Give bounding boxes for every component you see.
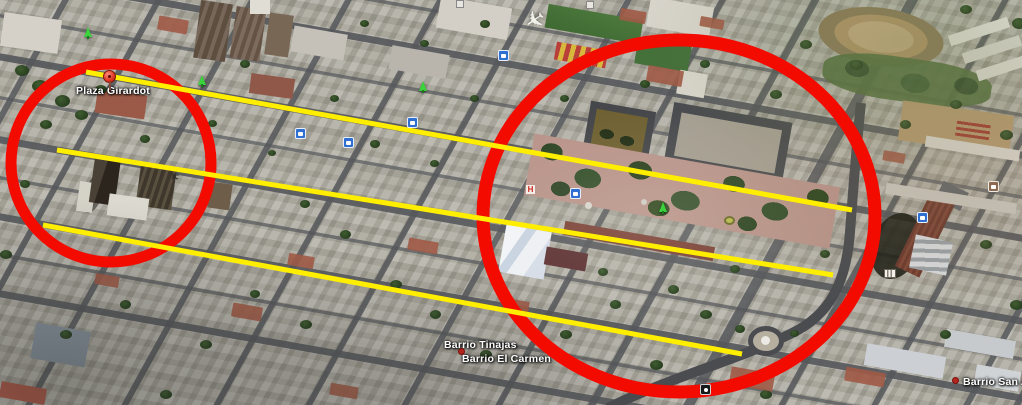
tree-icon[interactable] xyxy=(659,202,667,212)
photo-icon[interactable] xyxy=(295,128,306,139)
tree xyxy=(430,310,441,319)
tree xyxy=(250,290,260,298)
photo-icon[interactable] xyxy=(570,188,581,199)
museum-icon[interactable] xyxy=(884,269,896,278)
tree xyxy=(790,330,799,337)
tree xyxy=(510,120,519,127)
tree xyxy=(850,60,863,70)
tree xyxy=(240,60,250,68)
tree xyxy=(735,325,745,333)
satellite-map[interactable]: Plaza Girardot Barrio Tinajas Barrio El … xyxy=(0,0,1022,405)
red-dot-marker[interactable] xyxy=(458,348,465,355)
tree xyxy=(1012,18,1022,29)
map-label-barrio-el-carmen[interactable]: Barrio El Carmen xyxy=(462,353,551,365)
tree xyxy=(340,230,351,239)
small-poi-icon[interactable] xyxy=(456,0,464,8)
tree xyxy=(480,20,490,28)
tree xyxy=(860,160,872,169)
tree xyxy=(960,5,972,14)
tree xyxy=(390,280,402,289)
plaza-fountain xyxy=(585,202,592,209)
hospital-icon[interactable]: H xyxy=(526,185,535,194)
tree xyxy=(700,310,712,319)
tree xyxy=(15,65,29,76)
map-label-barrio-tinajas[interactable]: Barrio Tinajas xyxy=(444,339,517,351)
tree xyxy=(668,285,679,294)
tree-icon[interactable] xyxy=(84,27,92,37)
brown-photo-icon[interactable] xyxy=(988,181,999,192)
tree xyxy=(0,250,12,259)
tree xyxy=(20,180,30,188)
fountain xyxy=(761,336,770,345)
small-poi-icon[interactable] xyxy=(586,1,594,9)
plaza-fountain xyxy=(641,199,647,205)
dark-photo-icon[interactable] xyxy=(700,384,711,395)
plaza-flowerbed xyxy=(724,216,735,225)
red-dot-marker[interactable] xyxy=(952,377,959,384)
tree xyxy=(120,300,131,309)
tree xyxy=(420,40,429,47)
tree xyxy=(800,40,812,49)
tree xyxy=(700,60,710,68)
tree xyxy=(598,268,608,276)
map-label-barrio-san-a[interactable]: Barrio San A xyxy=(963,376,1022,388)
white-slab xyxy=(250,0,270,14)
tree xyxy=(300,320,312,329)
tree xyxy=(950,100,962,109)
tree xyxy=(208,120,217,127)
tree xyxy=(330,95,339,102)
tree xyxy=(32,80,48,92)
tree xyxy=(1000,130,1013,140)
tree xyxy=(560,95,569,102)
tree xyxy=(360,20,369,27)
tree xyxy=(730,265,740,273)
tree xyxy=(770,90,782,99)
tree-icon[interactable] xyxy=(419,81,427,91)
tree xyxy=(160,390,172,399)
lodging-icon[interactable] xyxy=(917,212,928,223)
red-pushpin-icon[interactable] xyxy=(103,70,116,83)
tree xyxy=(40,120,52,129)
tree xyxy=(610,300,621,309)
tree xyxy=(268,150,276,156)
tree xyxy=(470,95,479,102)
tree xyxy=(980,240,992,249)
tree xyxy=(1010,300,1022,310)
glass-roof-building xyxy=(498,224,552,279)
tree xyxy=(560,330,572,339)
photo-icon[interactable] xyxy=(343,137,354,148)
tree xyxy=(55,95,70,107)
map-label-plaza-girardot[interactable]: Plaza Girardot xyxy=(76,85,150,97)
tree xyxy=(370,140,380,148)
tree xyxy=(200,340,212,349)
tree xyxy=(820,250,830,258)
tree xyxy=(940,330,951,339)
tree xyxy=(300,200,310,208)
tree xyxy=(900,120,911,129)
tree xyxy=(430,160,439,167)
highrise-tower-3 xyxy=(207,182,232,211)
tree xyxy=(75,110,88,120)
photo-icon[interactable] xyxy=(498,50,509,61)
tree xyxy=(650,360,663,370)
tree xyxy=(140,135,150,143)
tree-icon[interactable] xyxy=(198,75,206,85)
tree xyxy=(60,330,72,339)
photo-icon[interactable] xyxy=(407,117,418,128)
